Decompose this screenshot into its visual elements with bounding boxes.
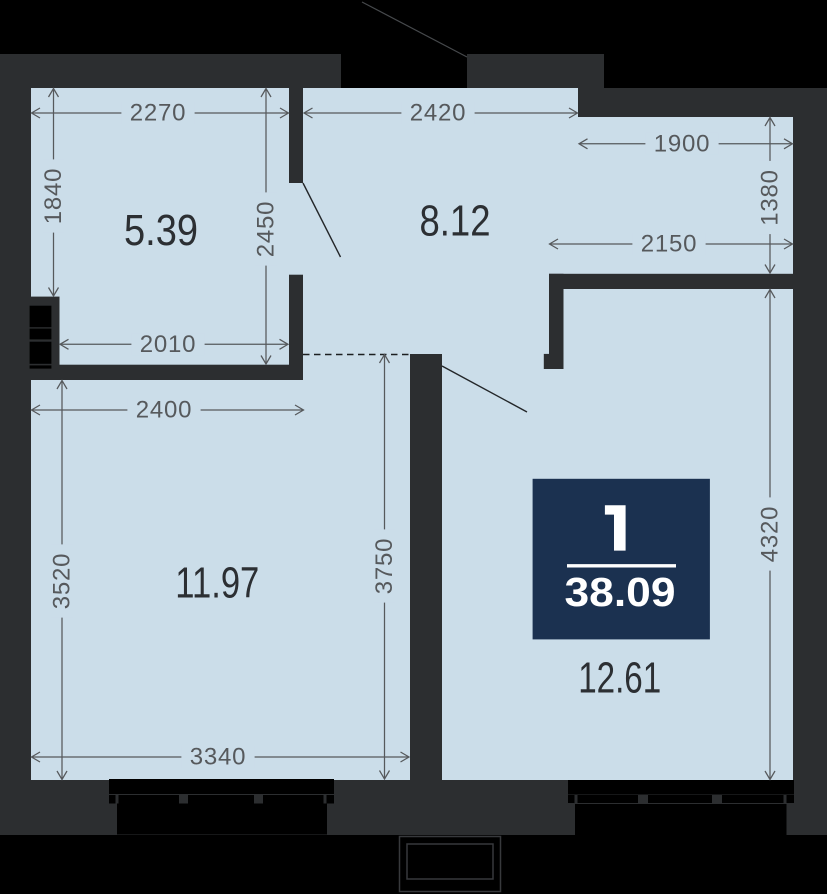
svg-text:2150: 2150 (641, 231, 698, 258)
svg-text:2400: 2400 (136, 397, 193, 424)
svg-text:2270: 2270 (130, 100, 187, 127)
svg-text:2010: 2010 (140, 331, 197, 358)
svg-text:4320: 4320 (757, 506, 784, 563)
svg-text:1840: 1840 (40, 168, 67, 225)
svg-text:12.61: 12.61 (578, 654, 661, 702)
svg-text:1900: 1900 (654, 130, 711, 157)
svg-text:11.97: 11.97 (175, 560, 259, 608)
svg-text:3750: 3750 (371, 538, 398, 595)
svg-text:1380: 1380 (757, 169, 784, 226)
svg-text:8.12: 8.12 (420, 198, 491, 246)
svg-text:2420: 2420 (410, 100, 467, 127)
svg-text:5.39: 5.39 (124, 207, 198, 255)
svg-text:2450: 2450 (253, 201, 280, 258)
svg-text:3340: 3340 (190, 744, 247, 771)
svg-text:3520: 3520 (49, 553, 76, 610)
svg-text:38.09: 38.09 (565, 569, 676, 615)
